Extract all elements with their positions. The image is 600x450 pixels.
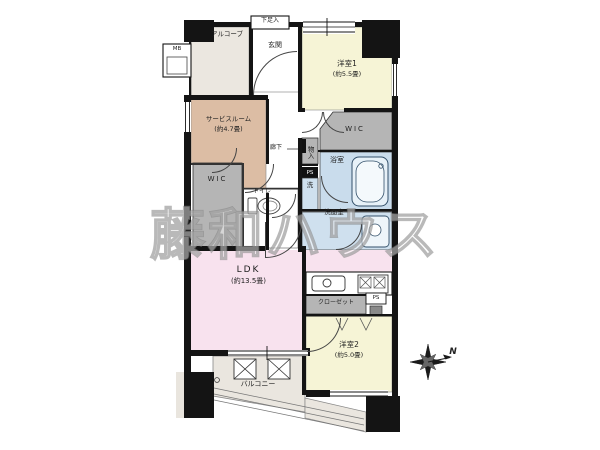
- label-closet: クローゼット: [306, 300, 366, 307]
- label-bedroom1-size: (約5.5畳): [302, 71, 392, 78]
- stove-icon: [358, 275, 388, 293]
- wall: [302, 164, 318, 166]
- wall: [298, 27, 302, 112]
- watermark-logo: 藤和ハウス: [150, 190, 450, 270]
- label-entrance: 玄関: [252, 42, 298, 50]
- label-compass-north: N: [446, 348, 460, 358]
- label-balcony: バルコニー: [226, 381, 290, 389]
- wall: [318, 150, 392, 152]
- label-laundry: 洗: [302, 182, 318, 189]
- wall: [266, 99, 269, 164]
- label-wic-right: WIC: [318, 126, 392, 134]
- pillar: [366, 396, 400, 432]
- label-service-room-size: (約4.7畳): [191, 126, 266, 133]
- label-bathroom: 浴室: [320, 157, 354, 165]
- wall: [306, 314, 392, 317]
- label-ps-lower: PS: [366, 295, 386, 301]
- wall: [344, 108, 392, 112]
- label-storage: 物入: [306, 140, 313, 164]
- label-wic-left: WIC: [193, 176, 242, 184]
- label-bedroom2-name: 洋室2: [306, 341, 392, 349]
- label-meter-box: MB: [163, 46, 191, 52]
- wall: [306, 390, 332, 397]
- label-ps-upper: PS: [302, 170, 318, 176]
- label-bedroom1-name: 洋室1: [302, 60, 392, 68]
- pillar: [362, 20, 400, 58]
- label-alcove: アルコーブ: [200, 31, 254, 38]
- floorplan-image: 下足入 アルコーブ MB 玄関 洋室1 (約5.5畳) WIC サービスルーム …: [0, 0, 600, 450]
- window-bedroom1-east: [392, 64, 398, 96]
- label-hallway: 廊下: [266, 145, 286, 152]
- balcony-side-ledge: [176, 372, 184, 418]
- label-service-room-name: サービスルーム: [191, 116, 266, 123]
- label-ldk-size: (約13.5畳): [191, 278, 306, 286]
- sink-icon: [312, 276, 345, 291]
- meter-box-inner: [167, 57, 187, 74]
- wall-thin: [306, 294, 368, 296]
- pillar: [184, 372, 214, 418]
- wall: [184, 350, 228, 356]
- label-bedroom2-size: (約5.0畳): [306, 352, 392, 359]
- label-shoe-cabinet: 下足入: [251, 18, 289, 25]
- wall: [184, 95, 268, 100]
